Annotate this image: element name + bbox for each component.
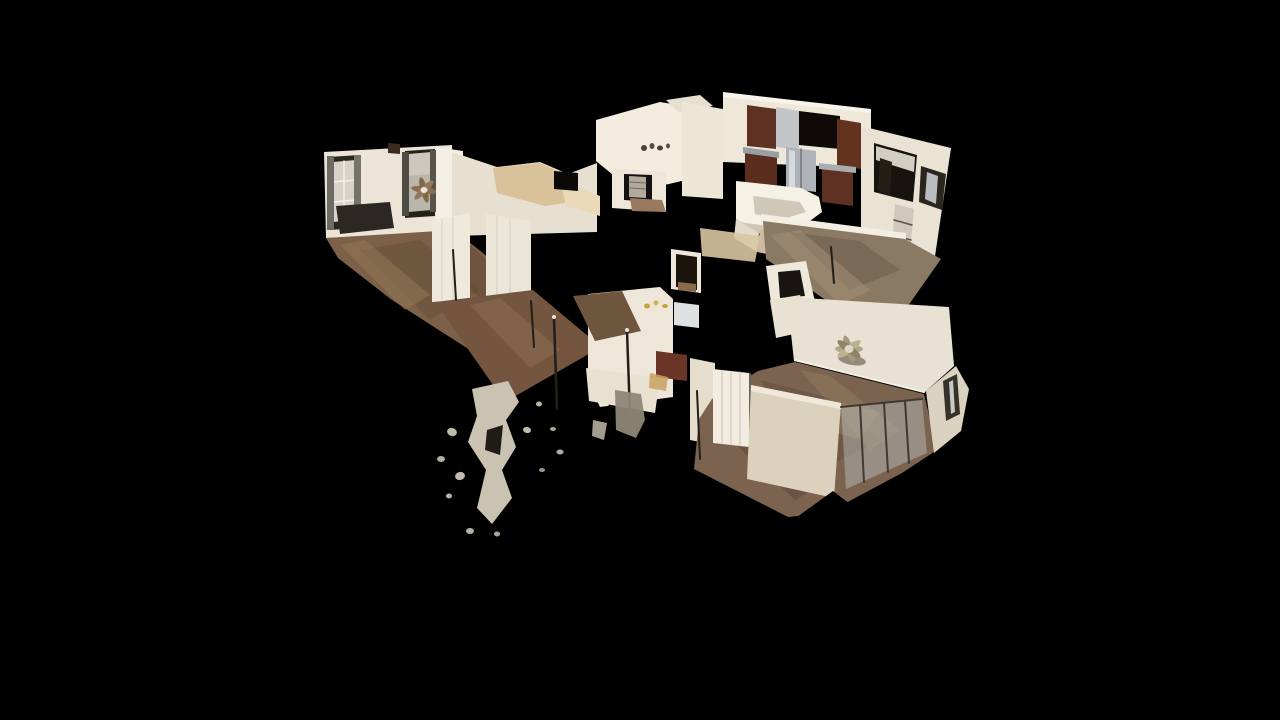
speckle-7 [523, 426, 532, 433]
bedroom-fan-hub [421, 187, 428, 193]
bath-gold-decor-2 [654, 301, 659, 306]
fridge-glare [789, 150, 795, 188]
speckle-11 [539, 468, 545, 472]
right-window-curtain [878, 158, 892, 196]
speckle-8 [536, 402, 542, 407]
niche-shutter [629, 176, 646, 198]
bath-mirror [674, 302, 699, 328]
pole-tip-1 [552, 315, 556, 319]
speckle-1 [446, 427, 458, 438]
speckle-9 [550, 427, 556, 431]
speckle-5 [466, 528, 474, 534]
gray-fragment [615, 390, 645, 438]
arched-window-lattice [408, 152, 432, 178]
entry-tall-wall [682, 102, 723, 199]
decor-item-3 [657, 146, 663, 151]
decor-item-1 [641, 145, 647, 151]
decor-item-2 [650, 143, 655, 149]
right-window-2-light [925, 172, 938, 204]
range-hood [799, 111, 840, 149]
arched-window-curtain-left [402, 152, 409, 216]
speckle-3 [454, 471, 466, 481]
speckle-4 [446, 494, 452, 499]
backsplash-steel [776, 107, 799, 150]
niche-brick-base [630, 198, 666, 212]
gray-fragment-2 [592, 420, 607, 440]
dollhouse-viewer-canvas[interactable] [0, 0, 1280, 720]
upper-cabinets-left [747, 105, 776, 149]
closet-doors-left [432, 213, 470, 302]
dollhouse-3d-view [0, 0, 1280, 720]
speckle-10 [557, 450, 564, 455]
cove-arch-opening [554, 171, 578, 191]
closet-doors-right [486, 214, 531, 297]
decor-item-4 [666, 144, 670, 149]
island-cabinet [822, 167, 853, 206]
pole-tip-2 [625, 328, 629, 332]
upper-cabinets-right [837, 119, 861, 169]
bedroom-door-frame [388, 143, 400, 154]
ceiling-fan-hub [845, 345, 854, 353]
speckle-6 [494, 532, 500, 537]
bath-gold-decor-3 [662, 304, 668, 308]
speckle-2 [437, 456, 445, 462]
left-window-curtain-left [327, 156, 334, 230]
bath-gold-decor-1 [644, 304, 650, 309]
